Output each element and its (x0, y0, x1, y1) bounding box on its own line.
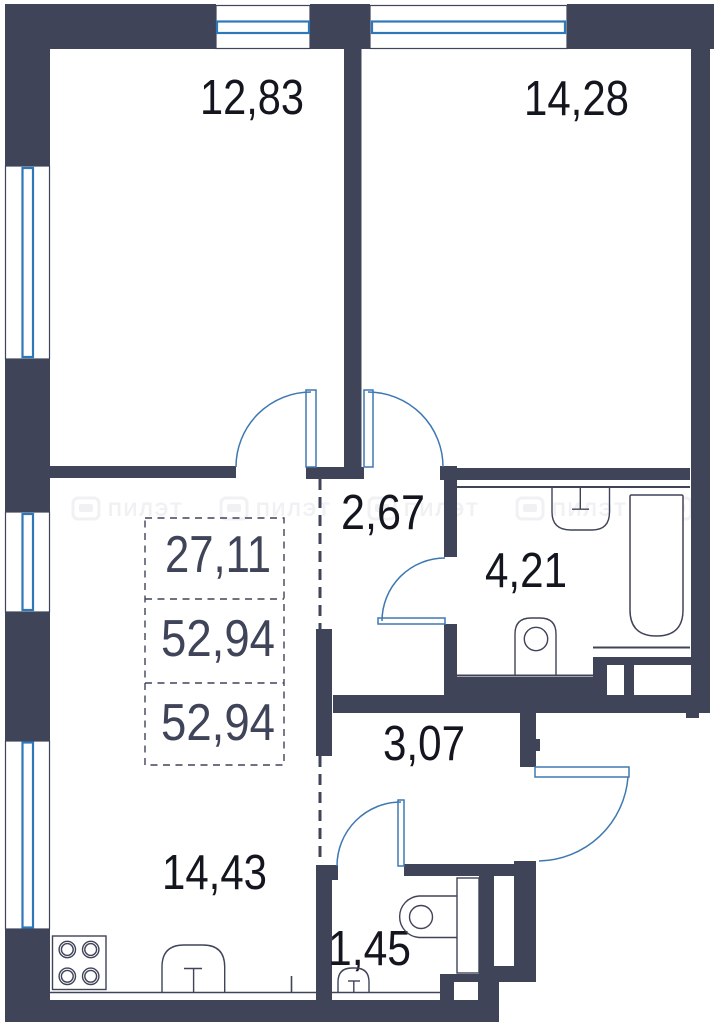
svg-text:3,07: 3,07 (383, 717, 465, 771)
svg-text:1,45: 1,45 (328, 922, 411, 976)
svg-text:27,11: 27,11 (165, 526, 271, 584)
svg-text:12,83: 12,83 (200, 71, 304, 125)
svg-text:52,94: 52,94 (161, 610, 275, 668)
svg-text:2,67: 2,67 (341, 486, 425, 540)
svg-text:14,43: 14,43 (162, 846, 267, 900)
svg-text:14,28: 14,28 (524, 72, 629, 126)
svg-text:52,94: 52,94 (161, 694, 275, 752)
svg-text:ПИЛЭТ: ПИЛЭТ (552, 500, 628, 521)
svg-text:4,21: 4,21 (485, 544, 567, 598)
